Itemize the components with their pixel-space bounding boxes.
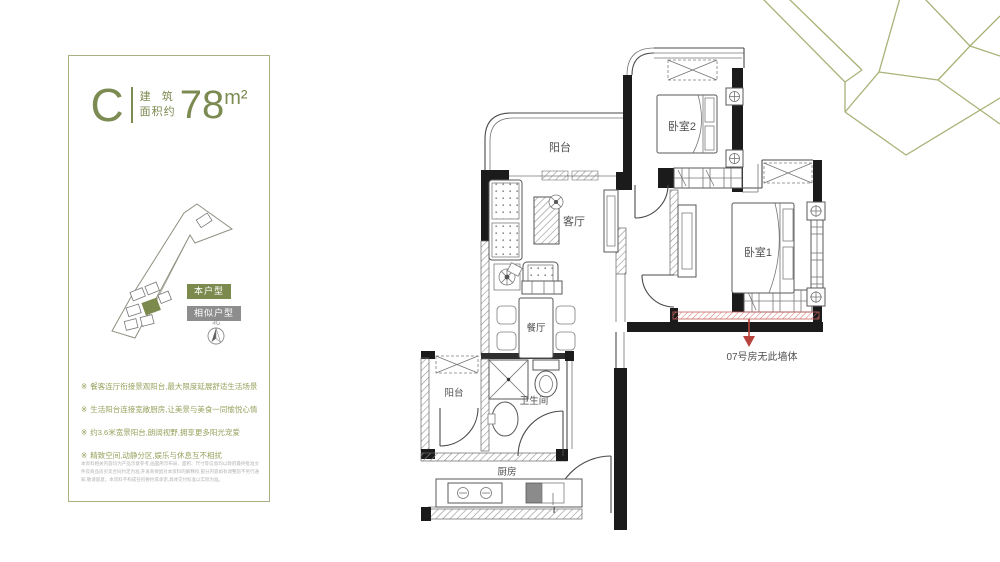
- area-caption-line1: 建 筑: [140, 90, 177, 105]
- area-caption-line2: 面积约: [140, 105, 177, 120]
- feature-text: 约3.6米宽景阳台,朗阔视野,拥享更多阳光宠爱: [90, 428, 240, 437]
- bullet-icon: ※: [81, 428, 87, 437]
- toilet: [533, 360, 559, 397]
- dining-sideboard: [522, 281, 562, 294]
- door-bedroom2: [635, 185, 668, 218]
- stove: [448, 483, 502, 503]
- area-unit: m²: [224, 88, 247, 108]
- feature-item: ※ 精致空间,动静分区,娱乐与休息互不相扰: [81, 451, 261, 460]
- label-dining: 餐厅: [526, 322, 546, 334]
- window-bedroom1-east: [811, 220, 823, 288]
- bullet-icon: ※: [81, 405, 87, 414]
- shower: [489, 360, 528, 399]
- feature-item: ※ 餐客连厅衔接景观阳台,最大限度延展舒适生活场景: [81, 382, 261, 391]
- unit-info-panel: C 建 筑 面积约 78 m²: [68, 55, 270, 502]
- feature-item: ※ 约3.6米宽景阳台,朗阔视野,拥享更多阳光宠爱: [81, 428, 261, 437]
- label-bathroom: 卫生间: [520, 395, 549, 407]
- flyer-canvas: C 建 筑 面积约 78 m²: [0, 0, 1000, 562]
- door-balcony-bottom: [440, 408, 478, 446]
- label-balcony-bottom: 阳台: [444, 387, 463, 399]
- coffee-table: [534, 195, 563, 244]
- label-bedroom1: 卧室1: [744, 245, 772, 259]
- sink: [488, 402, 518, 436]
- feature-text: 精致空间,动静分区,娱乐与休息互不相扰: [90, 451, 222, 460]
- annotation-text: 07号房无此墙体: [726, 350, 797, 363]
- label-bedroom2: 卧室2: [668, 119, 696, 133]
- washing-machine: [436, 356, 478, 373]
- legend-current-unit: 本户型: [187, 284, 231, 299]
- north-indicator: 北: [202, 317, 230, 351]
- label-living: 客厅: [563, 214, 585, 228]
- wardrobe-bedroom1: [764, 163, 812, 183]
- arrow-down-icon: [743, 336, 755, 347]
- missing-wall-annotation: 07号房无此墙体: [673, 312, 819, 363]
- window-bedroom2-south: [674, 168, 742, 188]
- area-value: 78: [180, 85, 225, 125]
- tv-cabinet: [604, 190, 618, 252]
- feature-text: 餐客连厅衔接景观阳台,最大限度延展舒适生活场景: [90, 382, 257, 391]
- floor-plan: 07号房无此墙体 阳台 卧室2 卧室1 客厅 餐厅 阳台 卫生间 厨房: [410, 35, 855, 550]
- label-kitchen: 厨房: [497, 466, 516, 478]
- label-balcony-top: 阳台: [549, 140, 571, 154]
- highlighted-building: [141, 298, 160, 316]
- sofa: [489, 180, 522, 260]
- wardrobe-bedroom2: [668, 60, 717, 80]
- bullet-icon: ※: [81, 451, 87, 460]
- header-divider: [131, 87, 133, 123]
- legend: 本户型 相似户型: [187, 284, 241, 321]
- area-caption: 建 筑 面积约: [140, 90, 177, 120]
- unit-type-letter: C: [90, 82, 123, 128]
- kitchen-sink: [526, 483, 564, 505]
- door-bedroom1: [642, 275, 674, 307]
- dresser-bedroom1: [678, 205, 696, 277]
- kitchen-counter: [436, 479, 582, 507]
- unit-header: C 建 筑 面积约 78 m²: [69, 82, 269, 128]
- plant-side-table: [494, 263, 522, 290]
- compass-icon: [206, 326, 226, 346]
- feature-text: 生活阳台连接宽敞厨房,让美景与美食一同愉悦心情: [90, 405, 257, 414]
- north-label: 北: [202, 317, 230, 326]
- bullet-icon: ※: [81, 382, 87, 391]
- disclaimer-text: 本资料相关内容均为产品示意参考,画面所示布局、面积、尺寸等信息均以政府最终批准文…: [81, 460, 259, 484]
- feature-item: ※ 生活阳台连接宽敞厨房,让美景与美食一同愉悦心情: [81, 405, 261, 414]
